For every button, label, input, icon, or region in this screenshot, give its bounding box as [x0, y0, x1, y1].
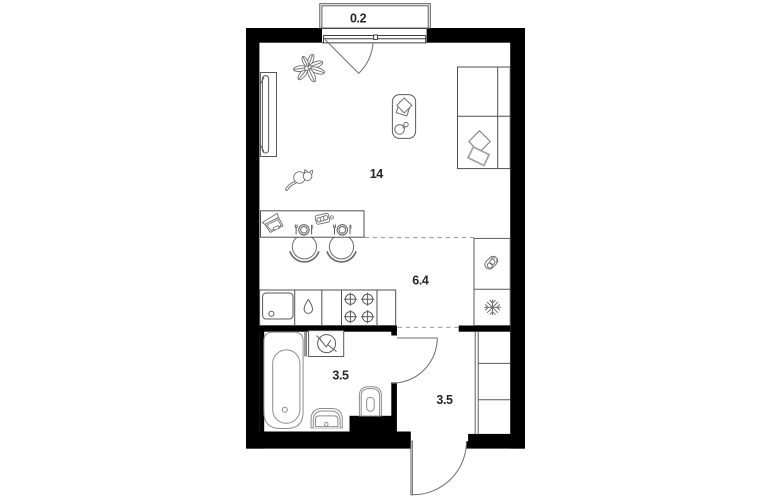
svg-text:6.4: 6.4	[412, 274, 429, 288]
svg-text:3.5: 3.5	[332, 369, 349, 383]
svg-text:14: 14	[370, 167, 384, 181]
svg-text:0.2: 0.2	[350, 12, 367, 26]
svg-text:3.5: 3.5	[436, 393, 453, 407]
